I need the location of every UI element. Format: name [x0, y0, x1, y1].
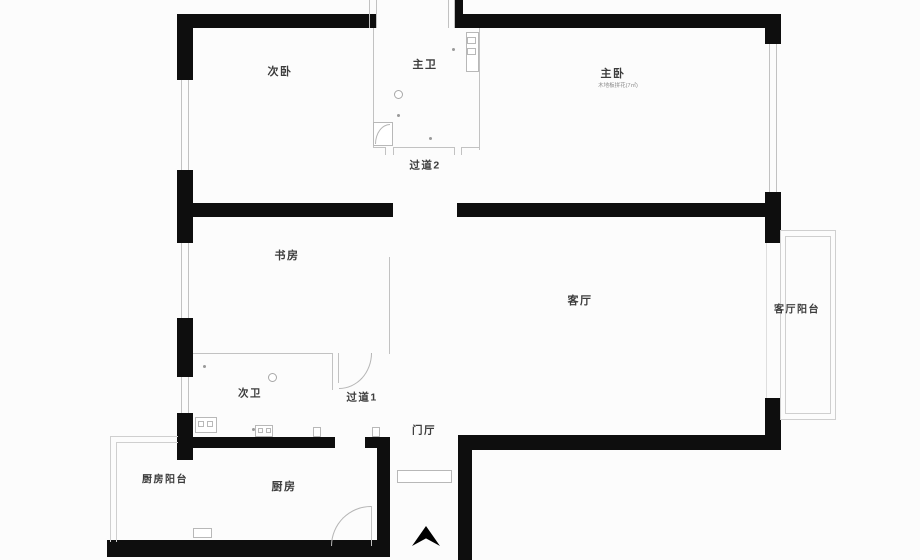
wall-segment — [458, 435, 777, 450]
window-line — [188, 377, 189, 413]
room-label-kitchen: 厨房 — [272, 478, 297, 494]
window-line — [776, 44, 777, 192]
room-label-second-bedroom: 次卧 — [268, 63, 293, 79]
detail-dot — [252, 428, 255, 431]
balcony-door-line — [766, 243, 767, 398]
room-label-master-bathroom: 主卫 — [413, 56, 438, 72]
fixture-box — [198, 421, 204, 427]
room-label-second-bathroom: 次卫 — [238, 386, 262, 401]
wall-segment — [193, 203, 393, 217]
partition-line — [389, 257, 390, 354]
partition-line — [454, 147, 455, 155]
window-line — [454, 0, 455, 28]
window-line — [181, 243, 182, 318]
fixture-box — [372, 427, 380, 437]
kitchen-balcony-outline — [116, 442, 178, 542]
room-label-master-bedroom: 主卧 — [601, 65, 626, 81]
floor-drain-circle — [268, 373, 277, 382]
partition-line — [461, 147, 462, 155]
wall-segment — [455, 0, 463, 14]
wall-segment — [177, 14, 193, 80]
fixture-box — [467, 37, 476, 44]
fixture-box — [207, 421, 213, 427]
room-label-entry-hall: 门厅 — [412, 423, 436, 438]
detail-dot — [203, 365, 206, 368]
floor-drain-circle — [394, 90, 403, 99]
wall-segment — [458, 435, 472, 560]
wall-segment — [180, 437, 335, 448]
door-swing-arc — [339, 353, 372, 389]
wall-segment — [457, 203, 765, 217]
window-line — [181, 377, 182, 413]
window-line — [188, 243, 189, 318]
partition-line — [193, 353, 333, 354]
partition-line — [385, 147, 386, 155]
room-label-hallway-1: 过道1 — [346, 390, 377, 405]
detail-dot — [452, 48, 455, 51]
window-line — [369, 0, 370, 28]
window-line — [181, 80, 182, 170]
partition-line — [332, 353, 333, 390]
partition-line — [394, 147, 454, 148]
entrance-arrow-icon — [412, 526, 440, 546]
fixture-box — [258, 428, 263, 433]
wall-segment — [177, 318, 193, 377]
fixture-box — [266, 428, 271, 433]
partition-line — [479, 28, 480, 150]
detail-dot — [397, 114, 400, 117]
living-balcony-outline — [785, 236, 831, 414]
floor-plan: 次卧 主卫 主卧 木地板拼花(7㎡) 过道2 书房 客厅 客厅阳台 次卫 过道1… — [0, 0, 920, 560]
room-label-living-room: 客厅 — [568, 292, 593, 308]
wall-segment — [177, 170, 193, 243]
wall-segment — [177, 14, 377, 28]
room-label-living-room-balcony: 客厅阳台 — [774, 301, 820, 316]
wall-segment — [455, 14, 781, 28]
partition-line — [371, 506, 372, 546]
partition-line — [393, 147, 394, 155]
door-swing-arc — [331, 506, 371, 546]
window-line — [188, 80, 189, 170]
fixture-box — [467, 48, 476, 55]
entrance-door — [397, 470, 452, 483]
fixture-box — [313, 427, 321, 437]
detail-dot — [429, 137, 432, 140]
room-label-hallway-2: 过道2 — [409, 158, 440, 173]
room-label-study: 书房 — [275, 247, 300, 263]
partition-line — [461, 147, 480, 148]
window-line — [448, 0, 449, 28]
room-label-kitchen-balcony: 厨房阳台 — [142, 471, 188, 486]
wall-segment — [377, 437, 390, 550]
window-line — [376, 0, 377, 28]
wall-segment — [765, 192, 781, 243]
window-line — [769, 44, 770, 192]
fixture-box — [193, 528, 212, 538]
room-label-master-bedroom-note: 木地板拼花(7㎡) — [598, 81, 638, 89]
wall-segment — [765, 14, 781, 44]
